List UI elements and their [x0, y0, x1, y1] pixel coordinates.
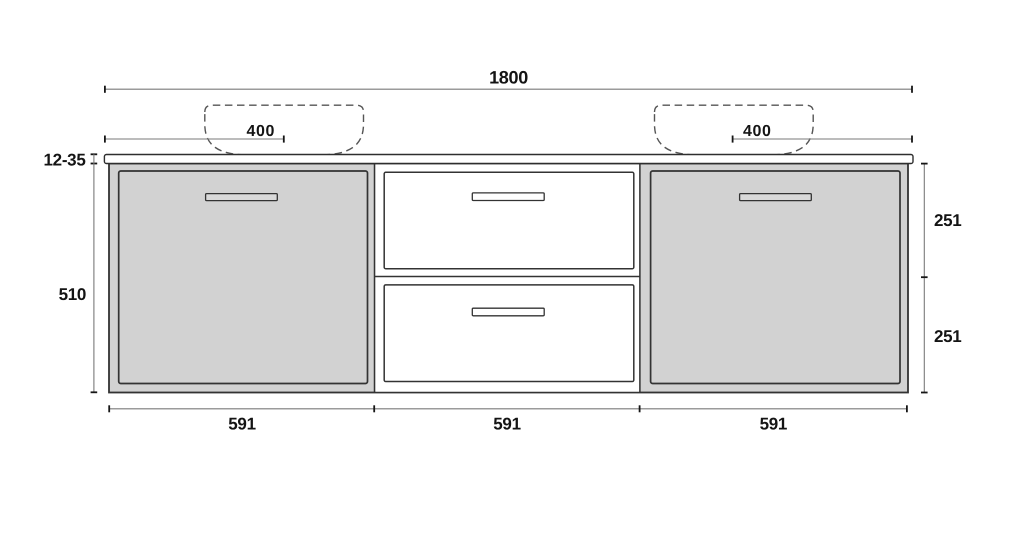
svg-text:12-35: 12-35 — [44, 151, 86, 170]
svg-text:251: 251 — [934, 327, 961, 346]
svg-text:510: 510 — [59, 285, 86, 304]
svg-text:251: 251 — [934, 211, 961, 230]
svg-text:400: 400 — [247, 123, 276, 140]
svg-text:1800: 1800 — [489, 68, 528, 88]
svg-text:591: 591 — [760, 415, 787, 434]
svg-text:591: 591 — [228, 415, 255, 434]
svg-text:400: 400 — [743, 123, 772, 140]
svg-text:591: 591 — [493, 415, 520, 434]
